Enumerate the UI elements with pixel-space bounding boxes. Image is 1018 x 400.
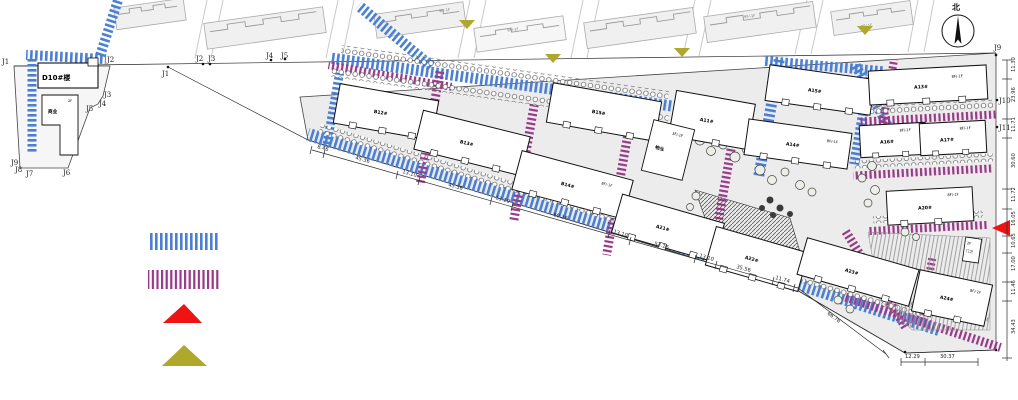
svg-text:J9: J9 — [993, 44, 1001, 52]
legend-main-entrance-icon — [163, 304, 202, 323]
building-a13-floors: 8F/-1F — [951, 74, 962, 79]
svg-text:23.96: 23.96 — [1011, 87, 1017, 102]
svg-text:J3: J3 — [103, 91, 111, 99]
svg-text:J1: J1 — [161, 70, 169, 78]
north-label: 北 — [952, 2, 960, 12]
building-guard: 2F 门卫 — [962, 237, 981, 263]
building-a17: A17# 8F/-1F — [919, 120, 987, 156]
building-a13-label: A13# — [914, 84, 928, 91]
svg-text:11.72: 11.72 — [1011, 187, 1017, 202]
legend — [148, 233, 219, 366]
svg-text:J1: J1 — [1, 58, 9, 66]
svg-text:11.46: 11.46 — [1011, 280, 1017, 295]
building-a16-floors: 8F/-1F — [899, 128, 910, 133]
right-dimension-chain — [1002, 60, 1012, 361]
svg-text:J5: J5 — [85, 105, 93, 113]
legend-secondary-road-swatch — [148, 270, 219, 289]
svg-text:16.05: 16.05 — [1011, 211, 1017, 226]
building-guard-label: 门卫 — [966, 248, 974, 254]
building-a16: A16# 8F/-1F — [859, 122, 927, 158]
svg-text:J2: J2 — [106, 56, 114, 64]
building-a16-label: A16# — [880, 139, 894, 146]
building-a20-floors: 8F/-1F — [947, 192, 958, 197]
site-plan-drawing: 9F/-1F 9F/-1F 9F/-1F 9F/-1F — [0, 0, 1018, 400]
svg-text:12.29: 12.29 — [905, 354, 920, 360]
svg-text:10.65: 10.65 — [1011, 233, 1017, 248]
svg-text:11.30: 11.30 — [1011, 57, 1017, 72]
legend-secondary-entrance-icon — [162, 345, 207, 366]
svg-text:J11: J11 — [998, 124, 1011, 132]
svg-text:J4: J4 — [98, 100, 107, 108]
svg-text:J9: J9 — [10, 159, 18, 167]
legend-primary-road-swatch — [148, 233, 218, 250]
svg-text:J8: J8 — [14, 166, 22, 174]
building-a20: A20# 8F/-1F — [886, 187, 974, 227]
svg-text:J2: J2 — [195, 55, 203, 63]
svg-text:J7: J7 — [25, 170, 33, 178]
building-d10: D10#楼 — [38, 58, 98, 88]
site-plan-canvas: 9F/-1F 9F/-1F 9F/-1F 9F/-1F — [0, 0, 1018, 400]
svg-text:11.71: 11.71 — [1011, 117, 1017, 132]
svg-text:J3: J3 — [207, 55, 215, 63]
building-a17-label: A17# — [940, 137, 954, 144]
building-d10-label: D10#楼 — [42, 73, 70, 82]
svg-text:J10: J10 — [998, 97, 1011, 105]
svg-text:34.43: 34.43 — [1011, 319, 1017, 334]
svg-text:17.00: 17.00 — [1011, 256, 1017, 271]
building-shangye-label: 商业 — [48, 108, 58, 115]
svg-text:30.60: 30.60 — [1011, 153, 1017, 168]
building-shangye-floors: 2F — [68, 99, 72, 103]
svg-text:J4: J4 — [265, 52, 274, 60]
svg-text:J5: J5 — [280, 52, 288, 60]
svg-text:J6: J6 — [62, 169, 71, 177]
building-a20-label: A20# — [918, 205, 932, 212]
north-compass: 北 — [942, 2, 974, 47]
building-a17-floors: 8F/-1F — [959, 126, 970, 131]
right-dimension-labels: 11.30 23.96 11.71 30.60 11.72 16.05 10.6… — [1011, 57, 1017, 334]
svg-text:30.37: 30.37 — [940, 354, 955, 360]
junction-labels-boundary: J1 J2 J3 J4 J5 — [161, 52, 288, 78]
building-guard-floors: 2F — [967, 241, 972, 246]
offsite-buildings: 9F/-1F 9F/-1F 9F/-1F 9F/-1F — [114, 0, 913, 52]
